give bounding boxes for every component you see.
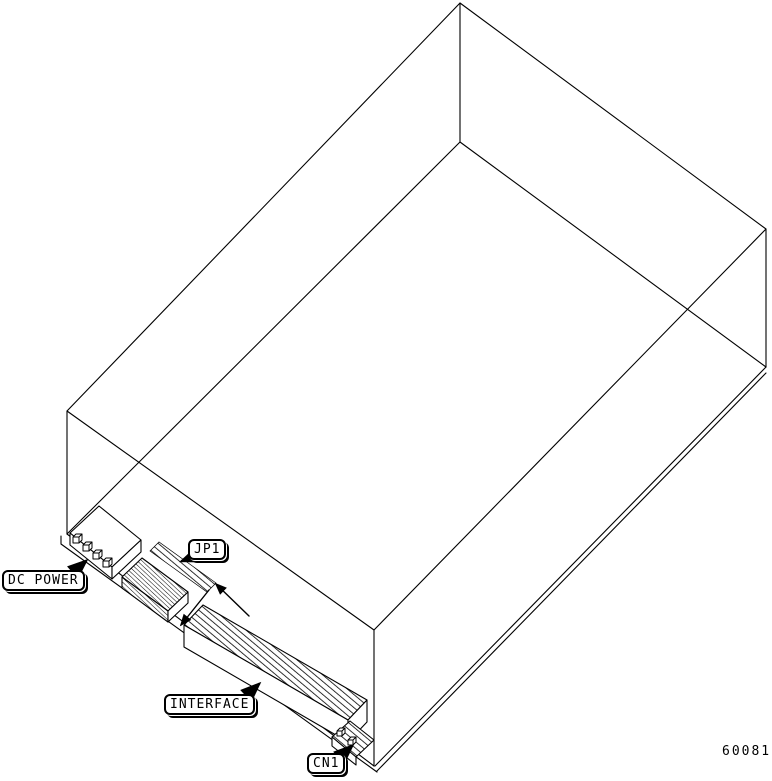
interface-label: INTERFACE	[164, 694, 255, 715]
pin1-arrow-ne	[216, 584, 249, 616]
lower-back-edges	[67, 142, 766, 534]
drive-isometric-drawing	[0, 0, 772, 781]
drive-body-outline	[67, 3, 766, 766]
dc-power-connector	[70, 506, 141, 579]
figure-code: 60081	[722, 744, 771, 759]
cn1-label: CN1	[307, 753, 345, 774]
vertical-edges	[67, 3, 766, 766]
dc-power-label: DC POWER	[2, 570, 85, 591]
diagram-canvas: DC POWER JP1 INTERFACE CN1 60081	[0, 0, 772, 781]
interface-connector	[184, 605, 367, 742]
top-face-edges	[67, 3, 766, 630]
jp1-label: JP1	[188, 539, 226, 560]
